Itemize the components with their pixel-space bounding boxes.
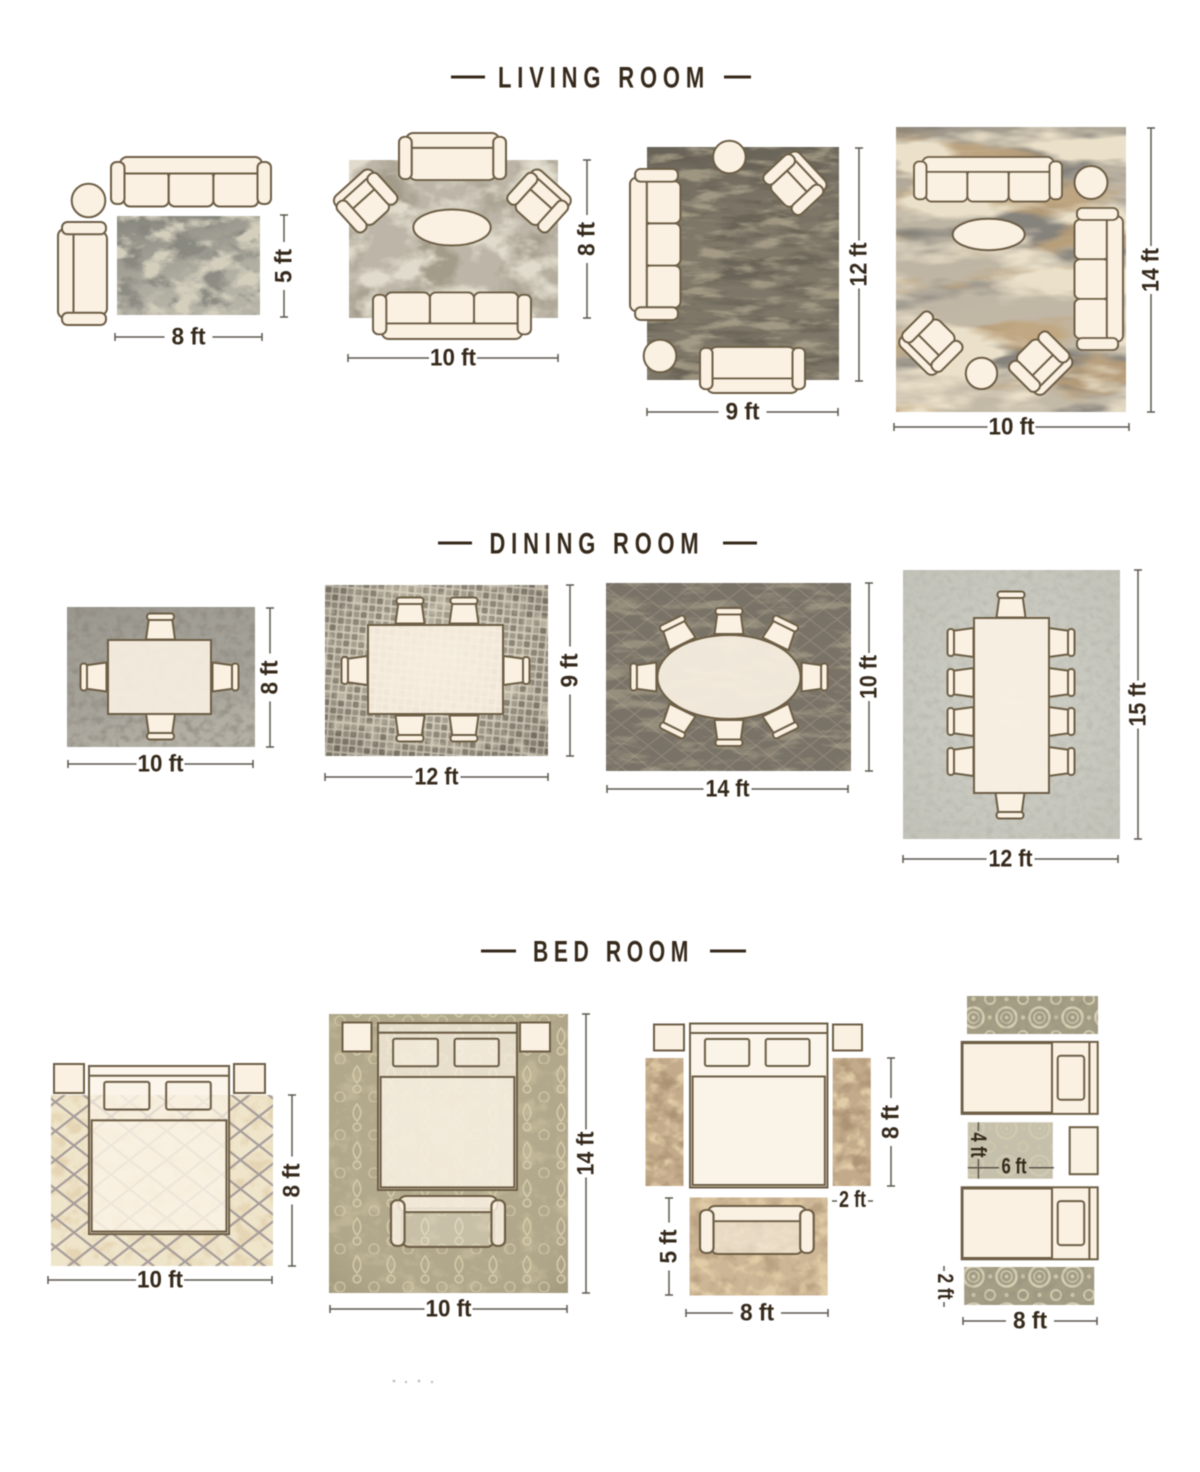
svg-text:8 ft: 8 ft <box>256 660 283 694</box>
svg-text:DINING ROOM: DINING ROOM <box>490 528 705 561</box>
svg-text:10 ft: 10 ft <box>138 750 184 777</box>
svg-text:4 ft: 4 ft <box>966 1133 991 1159</box>
svg-text:9 ft: 9 ft <box>726 398 760 425</box>
svg-text:5 ft: 5 ft <box>270 249 297 283</box>
svg-text:8 ft: 8 ft <box>877 1105 904 1139</box>
svg-text:12 ft: 12 ft <box>845 243 872 287</box>
svg-text:14 ft: 14 ft <box>572 1132 599 1176</box>
svg-text:14 ft: 14 ft <box>1137 248 1164 292</box>
svg-text:9 ft: 9 ft <box>556 653 583 687</box>
svg-text:8 ft: 8 ft <box>278 1163 305 1197</box>
svg-text:15 ft: 15 ft <box>1124 683 1151 727</box>
svg-text:5 ft: 5 ft <box>655 1229 682 1263</box>
svg-text:12 ft: 12 ft <box>415 763 459 790</box>
svg-text:2 ft: 2 ft <box>933 1274 958 1301</box>
svg-text:12 ft: 12 ft <box>989 845 1033 872</box>
svg-text:10 ft: 10 ft <box>989 413 1035 440</box>
svg-text:10 ft: 10 ft <box>855 655 882 699</box>
svg-text:10 ft: 10 ft <box>137 1266 183 1293</box>
svg-text:8 ft: 8 ft <box>172 323 206 350</box>
svg-text:8 ft: 8 ft <box>1013 1307 1047 1334</box>
svg-text:8 ft: 8 ft <box>573 222 600 256</box>
svg-text:2 ft: 2 ft <box>839 1186 866 1212</box>
svg-text:6 ft: 6 ft <box>1002 1154 1028 1179</box>
svg-text:14 ft: 14 ft <box>706 775 750 802</box>
svg-text:8 ft: 8 ft <box>740 1299 774 1326</box>
svg-text:10 ft: 10 ft <box>430 344 476 371</box>
svg-text:10 ft: 10 ft <box>426 1295 472 1322</box>
svg-text:BED ROOM: BED ROOM <box>533 936 694 969</box>
svg-text:LIVING ROOM: LIVING ROOM <box>498 62 710 95</box>
